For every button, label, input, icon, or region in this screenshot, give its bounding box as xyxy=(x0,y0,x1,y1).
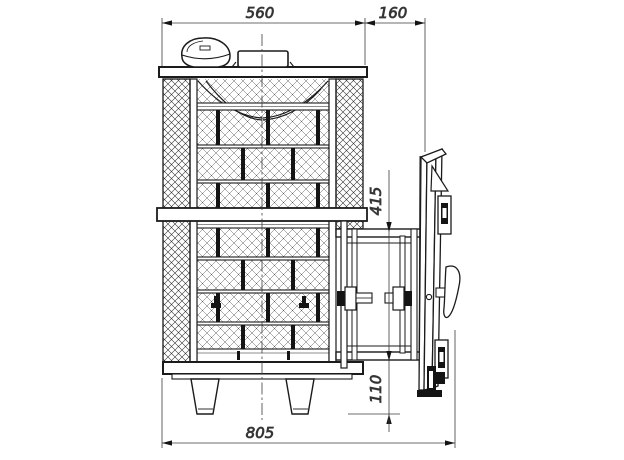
tunnel-bottom-wall xyxy=(336,352,422,360)
hinge-top xyxy=(438,196,451,234)
stove-technical-drawing: 560 160 415 110 805 xyxy=(0,0,624,460)
drawing-canvas: 560 160 415 110 805 xyxy=(0,0,624,460)
fuel-tunnel xyxy=(336,221,422,368)
dimension-805: 805 xyxy=(162,424,455,446)
stove-body xyxy=(157,34,367,420)
dimension-label-560: 560 xyxy=(246,4,275,22)
top-plate xyxy=(159,67,367,77)
bottom-plate xyxy=(163,362,363,374)
chimney-collar xyxy=(232,51,294,67)
stone-cladding-right xyxy=(336,79,363,229)
lid xyxy=(182,38,230,67)
dimension-label-160: 160 xyxy=(379,4,408,22)
dimension-label-110: 110 xyxy=(367,375,385,404)
dimension-110: 110 xyxy=(367,375,392,432)
tunnel-top-wall xyxy=(336,229,422,237)
door-assembly xyxy=(417,149,460,397)
dimension-560: 560 xyxy=(162,4,365,26)
dimension-160: 160 xyxy=(365,4,425,26)
legs xyxy=(191,379,314,414)
dimension-label-415: 415 xyxy=(367,187,385,216)
dimension-label-805: 805 xyxy=(246,424,275,442)
